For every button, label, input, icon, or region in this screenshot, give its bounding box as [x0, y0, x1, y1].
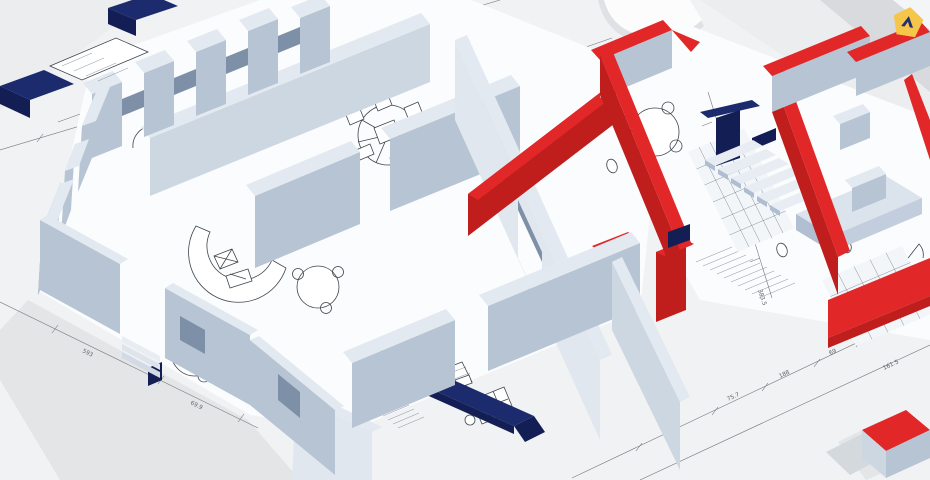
bim-viewer-viewport: 979 598.50 30 15 593 69.9 151.3 75.7 188… [0, 0, 930, 480]
location-marker-icon [899, 12, 917, 30]
floor-plan-scene: 979 598.50 30 15 593 69.9 151.3 75.7 188… [0, 0, 930, 480]
